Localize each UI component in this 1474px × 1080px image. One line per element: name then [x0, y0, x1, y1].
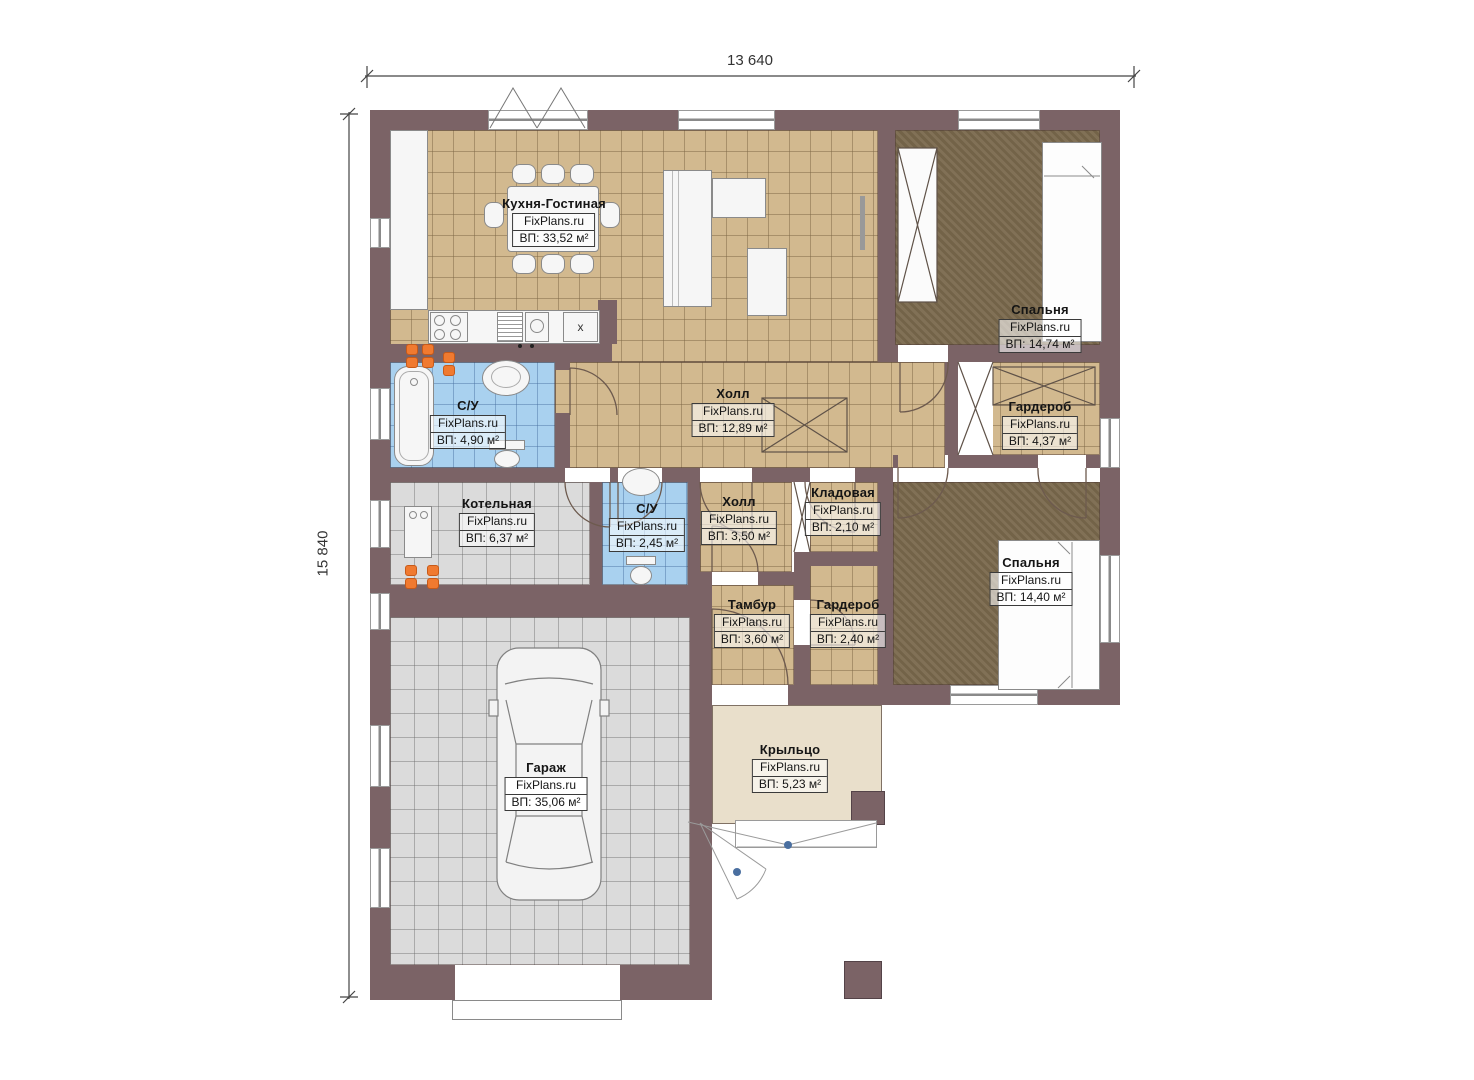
window-garage-left-2: [370, 848, 390, 908]
room-area: ВП: 2,10 м²: [806, 519, 880, 536]
wall-mid-e: [855, 468, 893, 482]
wall-garage-top: [370, 585, 690, 617]
stove-burner: [434, 329, 445, 340]
room-area: ВП: 2,40 м²: [811, 631, 885, 648]
room-area: ВП: 2,45 м²: [610, 535, 684, 552]
floor-plan: x: [0, 0, 1474, 1080]
room-name: Тамбур: [728, 597, 776, 612]
watermark: FixPlans.ru: [702, 512, 776, 528]
wall-living-bedroom: [878, 110, 895, 362]
room-area: ВП: 3,60 м²: [715, 631, 789, 648]
wall-vest-wrd2-b: [794, 645, 810, 685]
faucet-dot: [530, 344, 534, 348]
wall-bedroom2-top-a: [893, 455, 898, 468]
toilet2-bowl: [630, 566, 652, 585]
watermark: FixPlans.ru: [715, 615, 789, 631]
wall-mid-a: [370, 468, 565, 482]
stove-burner: [450, 315, 461, 326]
room-name: С/У: [636, 501, 658, 516]
boiler-dial: [420, 511, 428, 519]
wall-wardrobe1-left: [945, 362, 958, 455]
room-area: ВП: 12,89 м²: [693, 420, 774, 437]
ground-column: [845, 962, 881, 998]
wall-bath1-right-a: [555, 362, 570, 370]
room-name: Холл: [722, 494, 755, 509]
canopy-node-dot: [784, 841, 792, 849]
chair: [570, 254, 594, 274]
room-label-hall-main: Холл FixPlans.ru ВП: 12,89 м²: [692, 386, 775, 437]
chair: [541, 254, 565, 274]
coffee-table: [747, 248, 787, 316]
wall-garage-right: [690, 585, 712, 1000]
wardrobe1-door-strip: [958, 362, 993, 455]
wall-mid-d: [752, 468, 810, 482]
room-name: Гараж: [526, 760, 566, 775]
wall-bath2-hall2: [688, 482, 700, 585]
window-garage-left-1: [370, 725, 390, 787]
watermark: FixPlans.ru: [460, 514, 534, 530]
stove-burner: [434, 315, 445, 326]
room-label-kitchen-living: Кухня-Гостиная FixPlans.ru ВП: 33,52 м²: [502, 196, 606, 247]
watermark: FixPlans.ru: [693, 404, 774, 420]
watermark: FixPlans.ru: [806, 503, 880, 519]
wall-vest-wrd2-a: [794, 566, 810, 600]
wall-counter-stub: [598, 300, 617, 344]
wall-bedroom2-top-b: [948, 455, 1038, 468]
room-label-wardrobe-2: Гардероб FixPlans.ru ВП: 2,40 м²: [810, 597, 886, 648]
room-label-bathroom-1: С/У FixPlans.ru ВП: 4,90 м²: [430, 398, 506, 449]
watermark: FixPlans.ru: [506, 778, 587, 794]
toilet2-tank: [626, 556, 656, 565]
tv: [860, 196, 865, 250]
room-area: ВП: 3,50 м²: [702, 528, 776, 545]
room-area: ВП: 4,37 м²: [1003, 433, 1077, 450]
sofa-seat: [712, 178, 766, 218]
entrance-door-opening: [712, 685, 788, 705]
boiler-dial: [409, 511, 417, 519]
watermark: FixPlans.ru: [811, 615, 885, 631]
wall-boiler-bath2: [590, 482, 602, 585]
wall-mid-c: [662, 468, 700, 482]
room-name: Спальня: [1002, 555, 1060, 570]
bathroom1-sink-bowl: [491, 366, 521, 388]
radiator: [427, 565, 439, 589]
chair: [512, 164, 536, 184]
faucet-dot: [518, 344, 522, 348]
room-area: ВП: 35,06 м²: [506, 794, 587, 811]
window-boiler-left: [370, 500, 390, 548]
room-label-vestibule: Тамбур FixPlans.ru ВП: 3,60 м²: [714, 597, 790, 648]
window-left-small: [370, 593, 390, 630]
dimension-height-label: 15 840: [314, 531, 331, 577]
dishwasher: [497, 312, 523, 342]
wall-mid-b: [610, 468, 618, 482]
room-name: Котельная: [462, 496, 532, 511]
fridge-mark: x: [578, 320, 584, 334]
watermark: FixPlans.ru: [1000, 320, 1081, 336]
room-name: Гардероб: [816, 597, 879, 612]
stove-burner: [450, 329, 461, 340]
room-label-storage: Кладовая FixPlans.ru ВП: 2,10 м²: [805, 485, 881, 536]
watermark: FixPlans.ru: [1003, 417, 1077, 433]
sofa-chaise: [663, 170, 712, 307]
chair: [484, 202, 504, 228]
chair: [541, 164, 565, 184]
room-label-wardrobe-1: Гардероб FixPlans.ru ВП: 4,37 м²: [1002, 399, 1078, 450]
room-name: Крыльцо: [760, 742, 821, 757]
room-label-bedroom-2: Спальня FixPlans.ru ВП: 14,40 м²: [990, 555, 1073, 606]
watermark: FixPlans.ru: [610, 519, 684, 535]
room-area: ВП: 33,52 м²: [514, 230, 595, 247]
room-label-hall-2: Холл FixPlans.ru ВП: 3,50 м²: [701, 494, 777, 545]
garage-door-apron: [452, 1000, 622, 1020]
watermark: FixPlans.ru: [431, 416, 505, 432]
window-bath1-left: [370, 388, 390, 440]
room-label-bathroom-2: С/У FixPlans.ru ВП: 2,45 м²: [609, 501, 685, 552]
room-name: Кухня-Гостиная: [502, 196, 606, 211]
wall-bedroom1-bottom-a: [878, 345, 898, 362]
bathroom2-sink: [622, 468, 660, 496]
room-area: ВП: 5,23 м²: [753, 776, 827, 793]
watermark: FixPlans.ru: [514, 214, 595, 230]
window-kitchen-left: [370, 218, 390, 248]
porch-step: [735, 820, 877, 848]
wall-bath1-right-b: [555, 413, 570, 468]
radiator: [406, 344, 418, 368]
kitchen-sink-bowl: [530, 319, 544, 333]
wall-vest-top-b: [758, 572, 794, 585]
radiator: [443, 352, 455, 376]
toilet1-bowl: [494, 450, 520, 468]
room-name: Гардероб: [1008, 399, 1071, 414]
watermark: FixPlans.ru: [991, 573, 1072, 589]
room-area: ВП: 4,90 м²: [431, 432, 505, 449]
dimension-width-label: 13 640: [727, 52, 773, 69]
room-label-boiler-room: Котельная FixPlans.ru ВП: 6,37 м²: [459, 496, 535, 547]
fridge-box: x: [563, 312, 598, 342]
window-living-top: [678, 110, 775, 130]
wall-storage-bottom: [794, 552, 878, 566]
room-name: С/У: [457, 398, 479, 413]
chair: [570, 164, 594, 184]
room-label-bedroom-1: Спальня FixPlans.ru ВП: 14,74 м²: [999, 302, 1082, 353]
radiator: [422, 344, 434, 368]
wall-bedroom2-top-c: [1086, 455, 1100, 468]
room-name: Кладовая: [811, 485, 875, 500]
room-label-garage: Гараж FixPlans.ru ВП: 35,06 м²: [505, 760, 588, 811]
window-bedroom2-right: [1100, 555, 1120, 643]
room-name: Спальня: [1011, 302, 1069, 317]
bathtub-drain: [410, 378, 418, 386]
room-name: Холл: [716, 386, 749, 401]
room-label-porch: Крыльцо FixPlans.ru ВП: 5,23 м²: [752, 742, 828, 793]
window-bedroom1-top: [958, 110, 1040, 130]
room-area: ВП: 14,74 м²: [1000, 336, 1081, 353]
watermark: FixPlans.ru: [753, 760, 827, 776]
radiator: [405, 565, 417, 589]
window-kitchen-top: [488, 110, 588, 130]
room-area: ВП: 14,40 м²: [991, 589, 1072, 606]
window-wardrobe1-right: [1100, 418, 1120, 468]
chair: [512, 254, 536, 274]
canopy-node-dot: [733, 868, 741, 876]
garage-door-opening: [455, 965, 620, 1000]
wall-vest-top-a: [688, 572, 712, 585]
kitchen-cabinets: [390, 130, 428, 310]
room-area: ВП: 6,37 м²: [460, 530, 534, 547]
